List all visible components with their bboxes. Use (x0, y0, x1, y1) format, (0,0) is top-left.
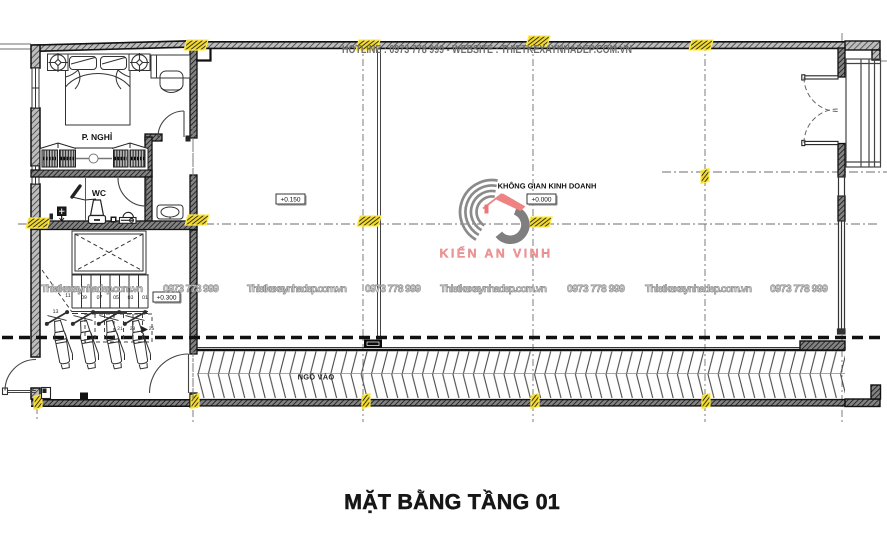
svg-text:13: 13 (53, 309, 59, 315)
svg-text:HOTLINE : 0973 778 999 - WEB: HOTLINE : 0973 778 999 - WEBSITE : THIET… (342, 44, 632, 56)
svg-text:07: 07 (97, 295, 103, 301)
svg-text:WC: WC (92, 188, 106, 198)
svg-text:KHÔNG GIAN KINH DOANH: KHÔNG GIAN KINH DOANH (498, 182, 597, 191)
svg-text:KIẾN AN VINH: KIẾN AN VINH (439, 246, 552, 261)
svg-text:MẶT BẰNG TẦNG 01: MẶT BẰNG TẦNG 01 (344, 489, 560, 514)
svg-text:+0.150: +0.150 (280, 197, 300, 204)
svg-text:Thietkexaynhadep.com.vn: Thietkexaynhadep.com.vn (440, 283, 547, 295)
svg-text:0973 778 999: 0973 778 999 (567, 283, 625, 295)
svg-text:05: 05 (113, 295, 119, 301)
svg-text:Thietkexaynhadep.com.vn: Thietkexaynhadep.com.vn (645, 283, 752, 295)
svg-text:09: 09 (81, 295, 87, 301)
svg-text:P. NGHỈ: P. NGHỈ (82, 132, 113, 142)
svg-text:0973 778 999: 0973 778 999 (770, 283, 828, 295)
svg-text:0973 778 999: 0973 778 999 (365, 283, 421, 295)
svg-text:+0.300: +0.300 (156, 295, 176, 302)
svg-text:25: 25 (149, 326, 155, 332)
svg-text:+0.000: +0.000 (531, 197, 551, 204)
svg-text:03: 03 (128, 295, 134, 301)
svg-text:0973 778 999: 0973 778 999 (163, 283, 219, 295)
svg-text:NGÕ VÀO: NGÕ VÀO (298, 373, 335, 382)
svg-text:21: 21 (117, 326, 123, 332)
svg-text:Thietkexaynhadep.com.vn: Thietkexaynhadep.com.vn (41, 283, 143, 295)
svg-text:Thietkexaynhadep.com.vn: Thietkexaynhadep.com.vn (247, 283, 347, 295)
svg-text:01: 01 (142, 295, 148, 301)
